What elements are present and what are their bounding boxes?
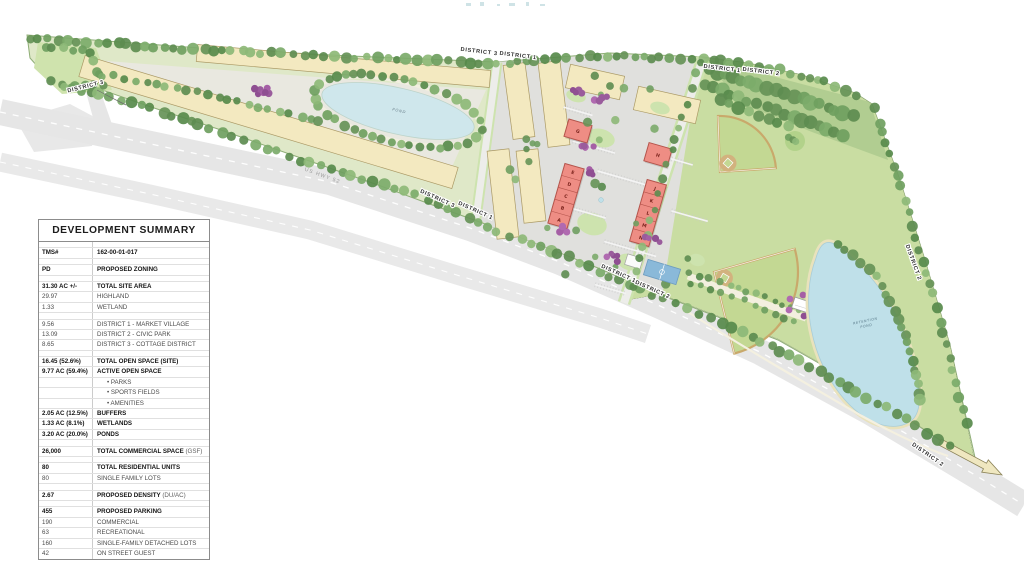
tree-icon [284, 109, 292, 117]
tree-icon [773, 299, 779, 305]
tree-icon [670, 135, 679, 144]
tree-icon [465, 213, 476, 224]
ornamental-tree-icon [614, 258, 621, 265]
tree-icon [658, 174, 667, 183]
tree-icon [442, 89, 451, 98]
summary-label: • SPORTS FIELDS [93, 388, 209, 397]
summary-label [93, 242, 209, 247]
summary-label: DISTRICT 2 - CIVIC PARK [93, 330, 209, 339]
summary-row: 1.33WETLAND [39, 303, 209, 313]
district-label: DISTRICT 3 [460, 47, 498, 58]
tree-icon [830, 82, 840, 92]
faint-watermark-mark [509, 3, 515, 6]
tree-icon [895, 181, 905, 191]
tree-icon [552, 249, 563, 260]
tree-icon [855, 258, 865, 268]
tree-icon [870, 103, 880, 113]
tree-icon [357, 175, 366, 184]
tree-icon [914, 394, 926, 406]
tree-icon [378, 72, 387, 81]
tree-icon [506, 165, 515, 174]
summary-label [93, 484, 209, 489]
summary-label: TOTAL RESIDENTIAL UNITS [93, 463, 209, 472]
tree-icon [575, 54, 584, 63]
tree-icon [847, 109, 860, 122]
ornamental-tree-icon [590, 172, 596, 178]
summary-label [93, 440, 209, 445]
tree-icon [840, 246, 848, 254]
tree-icon [263, 145, 273, 155]
tree-icon [688, 55, 697, 64]
development-summary-table: TMS#162-00-01-017PDPROPOSED ZONING31.30 … [39, 242, 209, 559]
tree-icon [218, 46, 226, 54]
tree-icon [492, 60, 500, 68]
tree-icon [943, 340, 951, 348]
summary-value: 80 [39, 474, 93, 483]
tree-icon [583, 118, 592, 127]
tree-icon [120, 75, 128, 83]
tree-icon [650, 125, 658, 133]
tree-icon [772, 311, 779, 318]
summary-value [39, 501, 93, 506]
tree-icon [707, 286, 714, 293]
summary-value: 190 [39, 518, 93, 527]
tree-icon [638, 243, 646, 251]
tree-icon [527, 240, 535, 248]
tree-icon [670, 146, 677, 153]
tree-icon [177, 45, 187, 55]
summary-label: • AMENITIES [93, 399, 209, 408]
summary-value: 9.56 [39, 320, 93, 329]
tree-icon [793, 354, 804, 365]
summary-value [39, 351, 93, 356]
summary-label [93, 351, 209, 356]
tree-icon [301, 51, 310, 60]
tree-icon [878, 282, 886, 290]
tree-icon [169, 44, 177, 52]
tree-icon [72, 38, 81, 47]
tree-icon [706, 313, 716, 323]
site-plan-page: 1234567891011121314151617181920212223242… [0, 0, 1024, 574]
summary-value: 3.20 AC (20.0%) [39, 430, 93, 439]
tree-icon [250, 139, 261, 150]
tree-icon [872, 272, 880, 280]
summary-row: 2.67PROPOSED DENSITY (DU/AC) [39, 491, 209, 501]
tree-icon [652, 207, 658, 213]
tree-icon [410, 189, 419, 198]
summary-row: 8.65DISTRICT 3 - COTTAGE DISTRICT [39, 340, 209, 350]
summary-value: TMS# [39, 248, 93, 257]
tree-icon [148, 43, 158, 53]
tree-icon [878, 127, 887, 136]
tree-icon [729, 293, 735, 299]
tree-icon [204, 124, 213, 133]
faint-watermark-mark [526, 2, 529, 6]
tree-icon [518, 234, 528, 244]
tree-icon [716, 278, 723, 285]
tree-icon [191, 118, 203, 130]
development-summary-panel: DEVELOPMENT SUMMARY TMS#162-00-01-017PDP… [38, 219, 210, 560]
tree-icon [227, 132, 236, 141]
tree-icon [620, 51, 628, 59]
tree-icon [239, 136, 248, 145]
tree-icon [314, 79, 324, 89]
ornamental-tree-icon [596, 97, 604, 105]
summary-label: 162-00-01-017 [93, 248, 209, 257]
tree-icon [342, 70, 351, 79]
tree-icon [474, 60, 483, 69]
tree-icon [540, 54, 550, 64]
tree-icon [675, 125, 682, 132]
tree-icon [736, 285, 742, 291]
tree-icon [672, 299, 680, 307]
tree-icon [367, 176, 379, 188]
tree-icon [596, 136, 603, 143]
tree-icon [946, 442, 954, 450]
ornamental-tree-icon [787, 296, 794, 303]
tree-icon [925, 279, 934, 288]
tree-icon [431, 54, 443, 66]
tree-icon [536, 242, 545, 251]
tree-icon [903, 338, 911, 346]
tree-icon [366, 70, 375, 79]
summary-row: 1.33 AC (8.1%)WETLANDS [39, 419, 209, 429]
tree-icon [43, 34, 51, 42]
summary-row: • AMENITIES [39, 399, 209, 409]
tree-icon [731, 101, 745, 115]
ornamental-tree-icon [251, 85, 258, 92]
summary-value: 8.65 [39, 340, 93, 349]
summary-label: DISTRICT 3 - COTTAGE DISTRICT [93, 340, 209, 349]
summary-label: PROPOSED PARKING [93, 507, 209, 516]
tree-icon [167, 112, 176, 121]
tree-icon [492, 228, 501, 237]
tree-icon [804, 362, 814, 372]
tree-icon [400, 75, 408, 83]
tree-icon [606, 82, 614, 90]
tree-icon [753, 289, 760, 296]
faint-watermark-mark [540, 4, 545, 6]
summary-value: 26,000 [39, 447, 93, 456]
summary-row: 31.30 AC +/-TOTAL SITE AREA [39, 282, 209, 292]
summary-label: BUFFERS [93, 409, 209, 418]
tree-icon [751, 98, 762, 109]
summary-value: 16.45 (52.6%) [39, 357, 93, 366]
tree-icon [906, 347, 914, 355]
tree-icon [575, 259, 584, 268]
tree-icon [784, 349, 795, 360]
tree-icon [633, 267, 641, 275]
tree-icon [772, 118, 782, 128]
tree-icon [225, 46, 234, 55]
tree-icon [911, 370, 921, 380]
tree-icon [744, 106, 754, 116]
tree-icon [332, 71, 342, 81]
tree-icon [181, 86, 191, 96]
summary-value: 1.33 [39, 303, 93, 312]
tree-icon [906, 208, 914, 216]
tree-icon [561, 53, 571, 63]
summary-label [93, 259, 209, 264]
tree-icon [69, 47, 77, 55]
development-summary-title: DEVELOPMENT SUMMARY [39, 220, 209, 242]
tree-icon [797, 73, 805, 81]
summary-label-suffix: (DU/AC) [161, 492, 186, 499]
tree-icon [522, 135, 530, 143]
tree-icon [902, 197, 911, 206]
tree-icon [953, 392, 964, 403]
tree-icon [654, 52, 663, 61]
tree-icon [59, 43, 68, 52]
tree-icon [695, 310, 704, 319]
tree-icon [737, 326, 748, 337]
summary-value: 160 [39, 539, 93, 548]
tree-icon [762, 293, 768, 299]
tree-icon [272, 146, 280, 154]
summary-value: 31.30 AC +/- [39, 282, 93, 291]
tree-icon [742, 296, 748, 302]
tree-icon [104, 92, 114, 102]
summary-label: COMMERCIAL [93, 518, 209, 527]
summary-label [93, 276, 209, 281]
tree-icon [254, 103, 263, 112]
tree-icon [145, 103, 154, 112]
tree-icon [339, 121, 350, 132]
tree-icon [837, 129, 850, 142]
tree-icon [363, 53, 371, 61]
summary-row: PDPROPOSED ZONING [39, 265, 209, 275]
tree-icon [572, 227, 580, 235]
tree-icon [742, 288, 749, 295]
fountain [599, 198, 604, 203]
tree-icon [728, 283, 734, 289]
tree-icon [397, 140, 405, 148]
tree-icon [564, 251, 575, 262]
tree-icon [430, 85, 440, 95]
tree-icon [194, 87, 202, 95]
tree-icon [847, 249, 858, 260]
summary-row: 2.05 AC (12.5%)BUFFERS [39, 409, 209, 419]
tree-icon [675, 54, 686, 65]
tree-icon [814, 98, 825, 109]
summary-value: 9.77 AC (59.4%) [39, 367, 93, 376]
ornamental-tree-icon [614, 253, 620, 259]
tree-icon [505, 233, 514, 242]
tree-icon [88, 56, 98, 66]
tree-icon [604, 273, 612, 281]
summary-value: PD [39, 265, 93, 274]
tree-icon [779, 302, 785, 308]
tree-icon [152, 80, 161, 89]
tree-icon [94, 39, 103, 48]
tree-icon [525, 158, 532, 165]
summary-row: 26,000TOTAL COMMERCIAL SPACE (GSF) [39, 447, 209, 457]
summary-value [39, 399, 93, 408]
tree-icon [613, 52, 621, 60]
tree-icon [130, 41, 141, 52]
tree-icon [444, 56, 452, 64]
tree-icon [593, 53, 602, 62]
tree-icon [948, 366, 956, 374]
tree-icon [633, 221, 639, 227]
tree-icon [390, 73, 399, 82]
tree-icon [705, 274, 713, 282]
faint-watermark-mark [497, 4, 500, 6]
tree-icon [372, 52, 384, 64]
tree-icon [646, 85, 654, 93]
tree-icon [881, 138, 890, 147]
ornamental-tree-icon [646, 235, 652, 241]
tree-icon [329, 51, 340, 62]
ornamental-tree-icon [800, 292, 807, 299]
tree-icon [561, 270, 569, 278]
tree-icon [937, 328, 948, 339]
tree-icon [47, 43, 56, 52]
tree-icon [911, 234, 919, 242]
tree-icon [46, 76, 55, 85]
summary-value: 2.05 AC (12.5%) [39, 409, 93, 418]
tree-icon [482, 58, 494, 70]
tree-icon [298, 113, 308, 123]
tree-icon [174, 84, 182, 92]
tree-icon [592, 254, 598, 260]
tree-icon [635, 254, 643, 262]
summary-value [39, 259, 93, 264]
tree-icon [696, 273, 704, 281]
tree-icon [753, 111, 764, 122]
faint-watermark-mark [480, 2, 484, 6]
tree-icon [780, 315, 788, 323]
tree-icon [698, 282, 704, 288]
tree-icon [678, 114, 685, 121]
tree-icon [755, 337, 765, 347]
summary-value [39, 484, 93, 489]
tree-icon [936, 318, 946, 328]
summary-label: DISTRICT 1 - MARKET VILLAGE [93, 320, 209, 329]
summary-label: HIGHLAND [93, 292, 209, 301]
summary-value [39, 313, 93, 318]
summary-label: TOTAL COMMERCIAL SPACE (GSF) [93, 447, 209, 456]
tree-icon [144, 79, 151, 86]
tree-icon [222, 95, 231, 104]
summary-row: 9.77 AC (59.4%)ACTIVE OPEN SPACE [39, 367, 209, 377]
tree-icon [120, 38, 131, 49]
summary-row: 16.45 (52.6%)TOTAL OPEN SPACE (SITE) [39, 357, 209, 367]
tree-icon [893, 170, 903, 180]
tree-icon [409, 77, 418, 86]
summary-value: 29.97 [39, 292, 93, 301]
tree-icon [208, 46, 219, 57]
summary-label: PROPOSED ZONING [93, 265, 209, 274]
tree-icon [523, 146, 529, 152]
summary-row: 455PROPOSED PARKING [39, 507, 209, 517]
tree-icon [474, 218, 483, 227]
tree-icon [686, 269, 693, 276]
tree-icon [914, 246, 922, 254]
tree-icon [819, 76, 828, 85]
tree-icon [761, 307, 768, 314]
tree-icon [852, 91, 861, 100]
summary-label: WETLANDS [93, 419, 209, 428]
tree-icon [783, 121, 794, 132]
tree-icon [109, 71, 117, 79]
tree-icon [641, 53, 649, 61]
summary-row: 160SINGLE-FAMILY DETACHED LOTS [39, 539, 209, 549]
tree-icon [691, 68, 700, 77]
tree-icon [684, 101, 692, 109]
ornamental-tree-icon [262, 89, 269, 96]
tree-icon [285, 153, 293, 161]
summary-value: 455 [39, 507, 93, 516]
tree-icon [806, 74, 814, 82]
tree-icon [471, 132, 482, 143]
tree-icon [313, 116, 323, 126]
tree-icon [160, 82, 168, 90]
summary-value: 80 [39, 463, 93, 472]
summary-row: • PARKS [39, 378, 209, 388]
tree-icon [102, 38, 112, 48]
tree-icon [921, 428, 933, 440]
tree-icon [290, 50, 298, 58]
tree-icon [388, 138, 396, 146]
tree-icon [603, 52, 612, 61]
tree-icon [902, 413, 912, 423]
summary-label-suffix: (GSF) [184, 448, 203, 455]
tree-icon [256, 50, 264, 58]
tree-icon [959, 405, 968, 414]
tree-icon [914, 379, 923, 388]
tree-icon [275, 47, 286, 58]
summary-row: • SPORTS FIELDS [39, 388, 209, 398]
tree-icon [882, 402, 892, 412]
tree-icon [774, 346, 785, 357]
tree-icon [922, 269, 930, 277]
tree-icon [246, 101, 254, 109]
summary-label [93, 457, 209, 462]
tree-icon [460, 99, 471, 110]
tree-icon [892, 409, 902, 419]
tree-icon [550, 52, 561, 63]
summary-row: 42ON STREET GUEST [39, 549, 209, 559]
ornamental-tree-icon [563, 229, 570, 236]
tree-icon [327, 164, 336, 173]
tree-icon [962, 418, 973, 429]
tree-icon [309, 50, 318, 59]
tree-icon [399, 186, 409, 196]
summary-label: PROPOSED DENSITY (DU/AC) [93, 491, 209, 500]
tree-icon [359, 129, 368, 138]
summary-label: TOTAL OPEN SPACE (SITE) [93, 357, 209, 366]
summary-label: SINGLE FAMILY LOTS [93, 474, 209, 483]
summary-label: PONDS [93, 430, 209, 439]
ornamental-tree-icon [591, 143, 597, 149]
tree-icon [590, 179, 600, 189]
tree-icon [890, 162, 899, 171]
summary-row: 9.56DISTRICT 1 - MARKET VILLAGE [39, 320, 209, 330]
tree-icon [840, 85, 852, 97]
tree-icon [591, 72, 599, 80]
tree-icon [161, 43, 170, 52]
tree-icon [317, 161, 325, 169]
tree-icon [393, 56, 401, 64]
tree-icon [611, 116, 619, 124]
tree-icon [620, 84, 629, 93]
tree-icon [534, 141, 540, 147]
summary-label: WETLAND [93, 303, 209, 312]
tree-icon [632, 53, 640, 61]
tree-icon [132, 78, 140, 86]
tree-icon [436, 144, 444, 152]
